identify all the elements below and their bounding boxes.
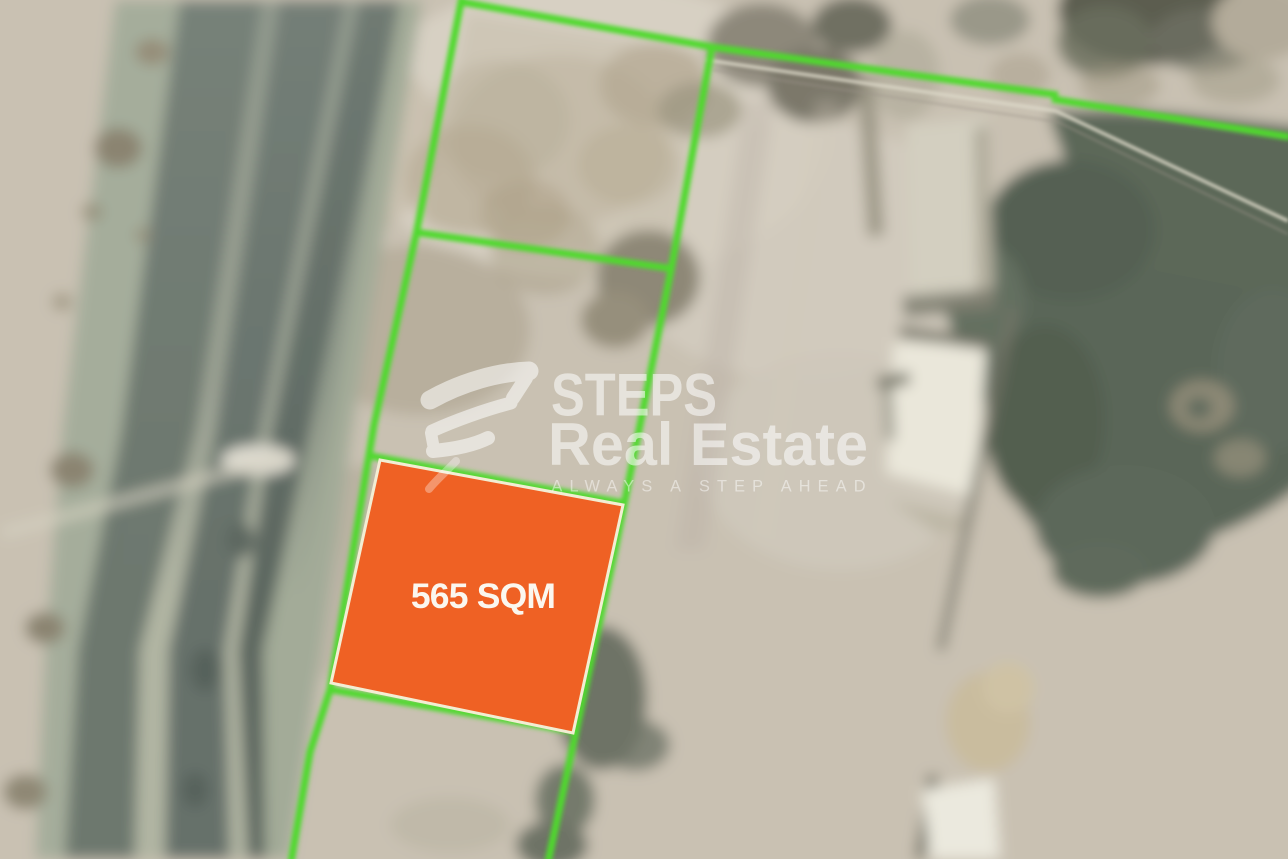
svg-text:565 SQM: 565 SQM [411, 576, 555, 616]
svg-text:ALWAYS A STEP AHEAD: ALWAYS A STEP AHEAD [552, 478, 866, 496]
svg-text:Real Estate: Real Estate [548, 411, 868, 478]
